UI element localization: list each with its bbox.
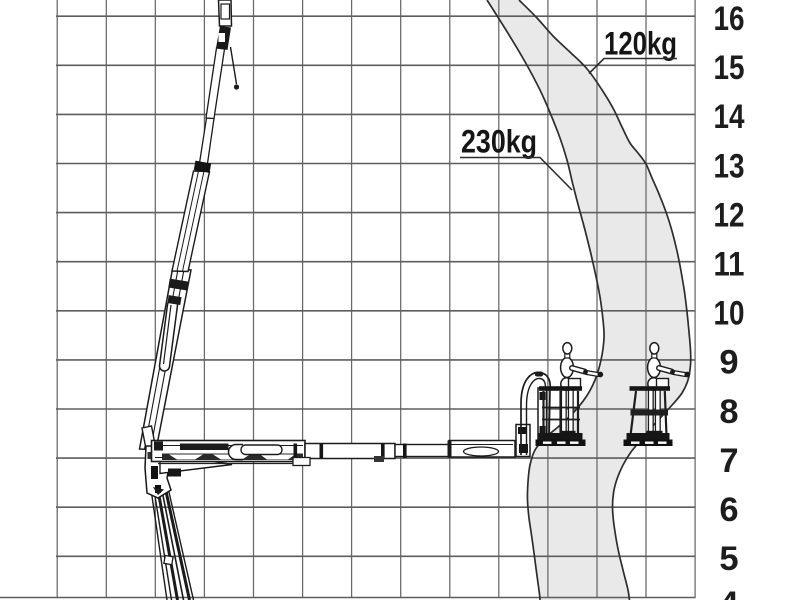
svg-text:9: 9 [719,344,738,382]
svg-text:12: 12 [714,196,745,234]
svg-text:230kg: 230kg [461,124,537,160]
svg-text:7: 7 [719,442,738,480]
svg-text:5: 5 [719,540,738,578]
svg-text:120kg: 120kg [604,26,677,62]
svg-text:13: 13 [714,147,745,185]
svg-text:6: 6 [719,491,738,529]
svg-text:15: 15 [714,49,745,87]
svg-text:10: 10 [714,295,745,333]
svg-text:11: 11 [714,246,745,284]
svg-text:4: 4 [719,585,738,600]
svg-text:8: 8 [719,393,738,431]
svg-text:14: 14 [714,98,745,136]
svg-text:16: 16 [714,0,745,38]
